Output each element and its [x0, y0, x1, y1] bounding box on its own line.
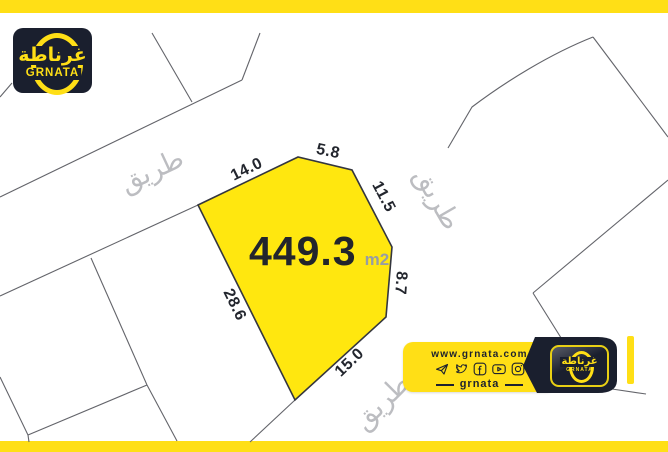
land-plot-flyer: طريق طريق طريق 14.0 5.8 11.5 8.7 15.0 28… [0, 0, 668, 452]
parcel-line [533, 180, 668, 293]
plot-area: 449.3 m2 [249, 228, 389, 275]
logo-arabic-text: غرناطة [15, 46, 90, 65]
plot-polygon [198, 157, 392, 400]
plot-area-unit: m2 [365, 250, 390, 270]
dimension-label: 8.7 [390, 271, 410, 296]
parcel-line [28, 385, 147, 435]
plot-area-value: 449.3 [249, 228, 357, 275]
parcel-line [0, 83, 12, 97]
logo-arabic-text: غرناطة [559, 357, 599, 367]
parcel-line [0, 377, 29, 442]
road-edge-lower [0, 205, 198, 296]
parcel-line [91, 258, 147, 385]
banner-yellow-bar [627, 336, 634, 384]
grnata-logo: غرناطة GRNATA [13, 28, 92, 93]
parcel-line [152, 33, 192, 102]
parcel-line [147, 385, 177, 441]
parcel-line [593, 37, 668, 137]
parcel-line [242, 33, 260, 80]
contact-banner: www.grnata.com [400, 332, 668, 398]
logo-latin-text: GRNATA [566, 368, 593, 373]
parcel-line [250, 400, 295, 442]
parcel-line [448, 37, 593, 148]
grnata-logo-small: غرناطة GRNATA [550, 345, 609, 387]
logo-latin-text: GRNATA [24, 68, 81, 80]
